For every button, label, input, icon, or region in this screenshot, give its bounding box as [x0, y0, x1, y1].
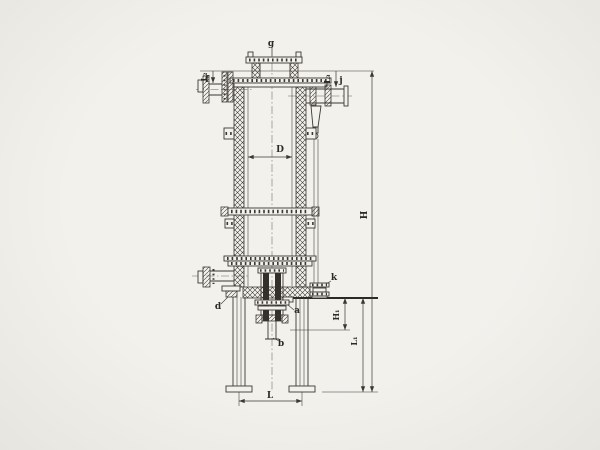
label-dim-total-height: H — [360, 210, 370, 219]
central-discharge-assembly — [255, 268, 294, 341]
label-nozzle-a: a — [294, 306, 300, 316]
top-nozzle-g — [246, 47, 302, 78]
label-nozzle-b: b — [278, 339, 284, 349]
label-nozzle-d: d — [215, 302, 222, 312]
label-dim-top-right-offset: L₃ — [322, 74, 332, 84]
extension-lines — [200, 71, 378, 406]
right-nozzle-k — [310, 281, 331, 298]
engineering-drawing-page: g f j k d a b D L H H₁ L₁ L₂ L₃ — [0, 0, 600, 450]
label-nozzle-k: k — [331, 273, 338, 283]
label-dim-bottom-height: H₁ — [331, 309, 341, 320]
label-nozzle-j: j — [338, 76, 342, 86]
label-dim-lower-height: L₁ — [349, 336, 359, 345]
label-dim-leg-span: L — [267, 391, 274, 401]
support-legs — [226, 297, 315, 392]
vessel-drawing: g f j k d a b D L H H₁ L₁ L₂ L₃ — [0, 0, 600, 450]
label-dim-diameter: D — [276, 145, 284, 155]
bottom-flange — [224, 256, 378, 298]
label-dim-top-left-offset: L₂ — [199, 72, 209, 82]
vessel-top-flange — [230, 78, 331, 87]
label-nozzle-g: g — [268, 39, 275, 49]
right-nozzle-j — [306, 85, 348, 283]
